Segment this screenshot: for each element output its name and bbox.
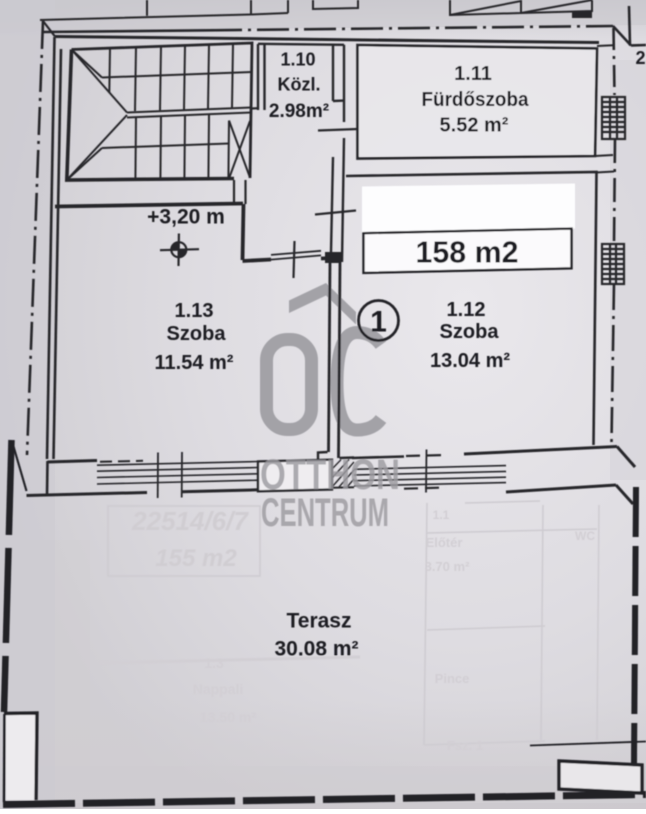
svg-text:13.04 m²: 13.04 m² bbox=[430, 350, 510, 372]
svg-text:WC: WC bbox=[575, 529, 595, 543]
svg-text:2.98m²: 2.98m² bbox=[269, 101, 329, 122]
svg-text:Nappali: Nappali bbox=[193, 681, 244, 697]
svg-text:22514/6/7: 22514/6/7 bbox=[131, 506, 249, 536]
svg-text:Előtér: Előtér bbox=[426, 535, 463, 550]
svg-text:1.10: 1.10 bbox=[280, 50, 315, 70]
svg-text:1.11: 1.11 bbox=[454, 63, 492, 85]
svg-text:Fsz. 1: Fsz. 1 bbox=[447, 738, 483, 753]
svg-text:1.3: 1.3 bbox=[204, 655, 224, 671]
svg-text:3.70 m²: 3.70 m² bbox=[425, 559, 470, 574]
svg-text:1.12: 1.12 bbox=[447, 299, 486, 321]
svg-text:13.50 m²: 13.50 m² bbox=[200, 709, 256, 725]
svg-text:Fürdőszoba: Fürdőszoba bbox=[422, 89, 530, 111]
svg-text:1.1: 1.1 bbox=[433, 508, 450, 522]
svg-text:Közl.: Közl. bbox=[278, 75, 321, 95]
svg-text:Pince: Pince bbox=[435, 671, 470, 686]
svg-text:Szoba: Szoba bbox=[167, 323, 227, 345]
svg-text:1: 1 bbox=[370, 306, 387, 339]
svg-text:2: 2 bbox=[635, 48, 645, 68]
svg-text:+3,20 m: +3,20 m bbox=[147, 206, 225, 229]
svg-text:158 m2: 158 m2 bbox=[416, 235, 519, 270]
svg-text:30.08 m²: 30.08 m² bbox=[274, 638, 358, 661]
svg-text:Szoba: Szoba bbox=[440, 321, 500, 343]
svg-text:155 m2: 155 m2 bbox=[155, 545, 237, 572]
svg-text:5.52 m²: 5.52 m² bbox=[440, 115, 509, 137]
svg-text:11.54 m²: 11.54 m² bbox=[155, 352, 234, 374]
svg-text:Terasz: Terasz bbox=[287, 610, 352, 633]
svg-text:1.13: 1.13 bbox=[175, 300, 214, 322]
svg-text:CENTRUM: CENTRUM bbox=[261, 491, 389, 535]
